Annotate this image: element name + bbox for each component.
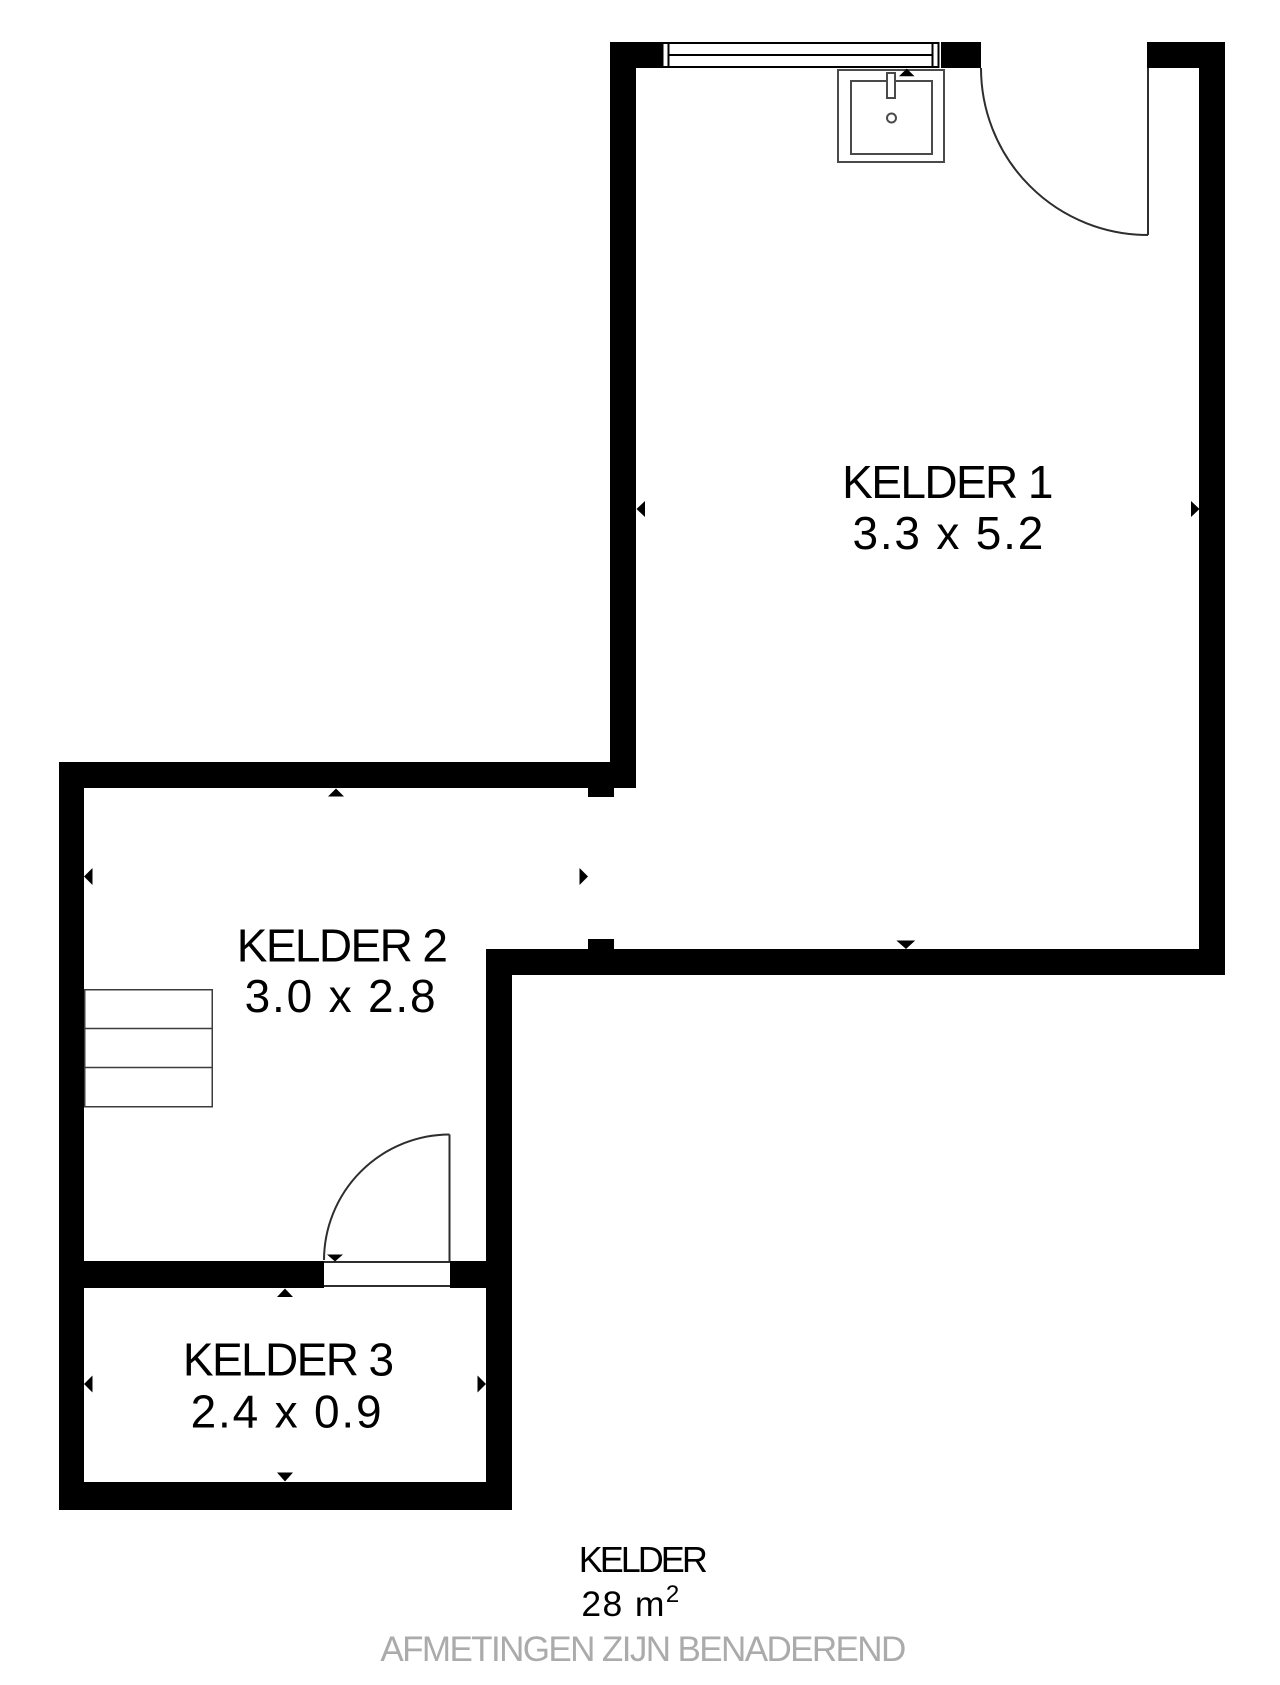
svg-text:KELDER 2: KELDER 2 (237, 919, 447, 971)
svg-text:KELDER 1: KELDER 1 (842, 456, 1052, 508)
svg-text:28 m2: 28 m2 (581, 1581, 680, 1624)
svg-text:KELDER: KELDER (579, 1539, 707, 1580)
svg-text:3.3 x 5.2: 3.3 x 5.2 (852, 507, 1045, 559)
svg-text:3.0 x 2.8: 3.0 x 2.8 (245, 970, 438, 1022)
svg-text:KELDER 3: KELDER 3 (183, 1334, 393, 1386)
svg-text:2.4 x 0.9: 2.4 x 0.9 (191, 1386, 384, 1438)
svg-text:AFMETINGEN ZIJN BENADEREND: AFMETINGEN ZIJN BENADEREND (380, 1630, 905, 1669)
